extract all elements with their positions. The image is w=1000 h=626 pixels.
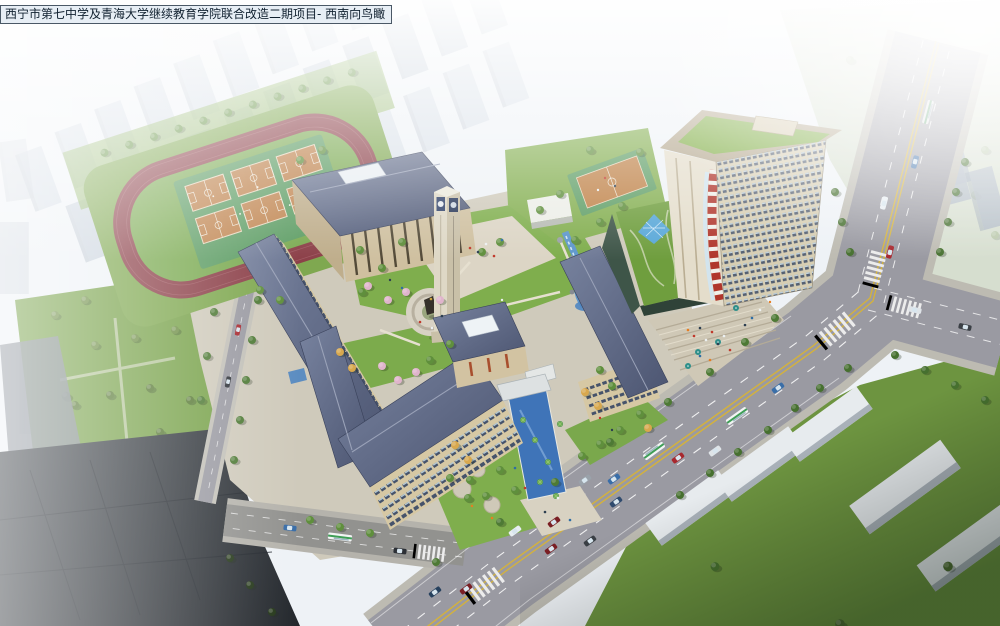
aerial-rendering — [0, 0, 1000, 626]
title-text: 西宁市第七中学及青海大学继续教育学院联合改造二期项目- 西南向鸟瞰 — [5, 7, 385, 21]
rendering-canvas: 西宁市第七中学及青海大学继续教育学院联合改造二期项目- 西南向鸟瞰 — [0, 0, 1000, 626]
title-bar: 西宁市第七中学及青海大学继续教育学院联合改造二期项目- 西南向鸟瞰 — [0, 5, 392, 24]
